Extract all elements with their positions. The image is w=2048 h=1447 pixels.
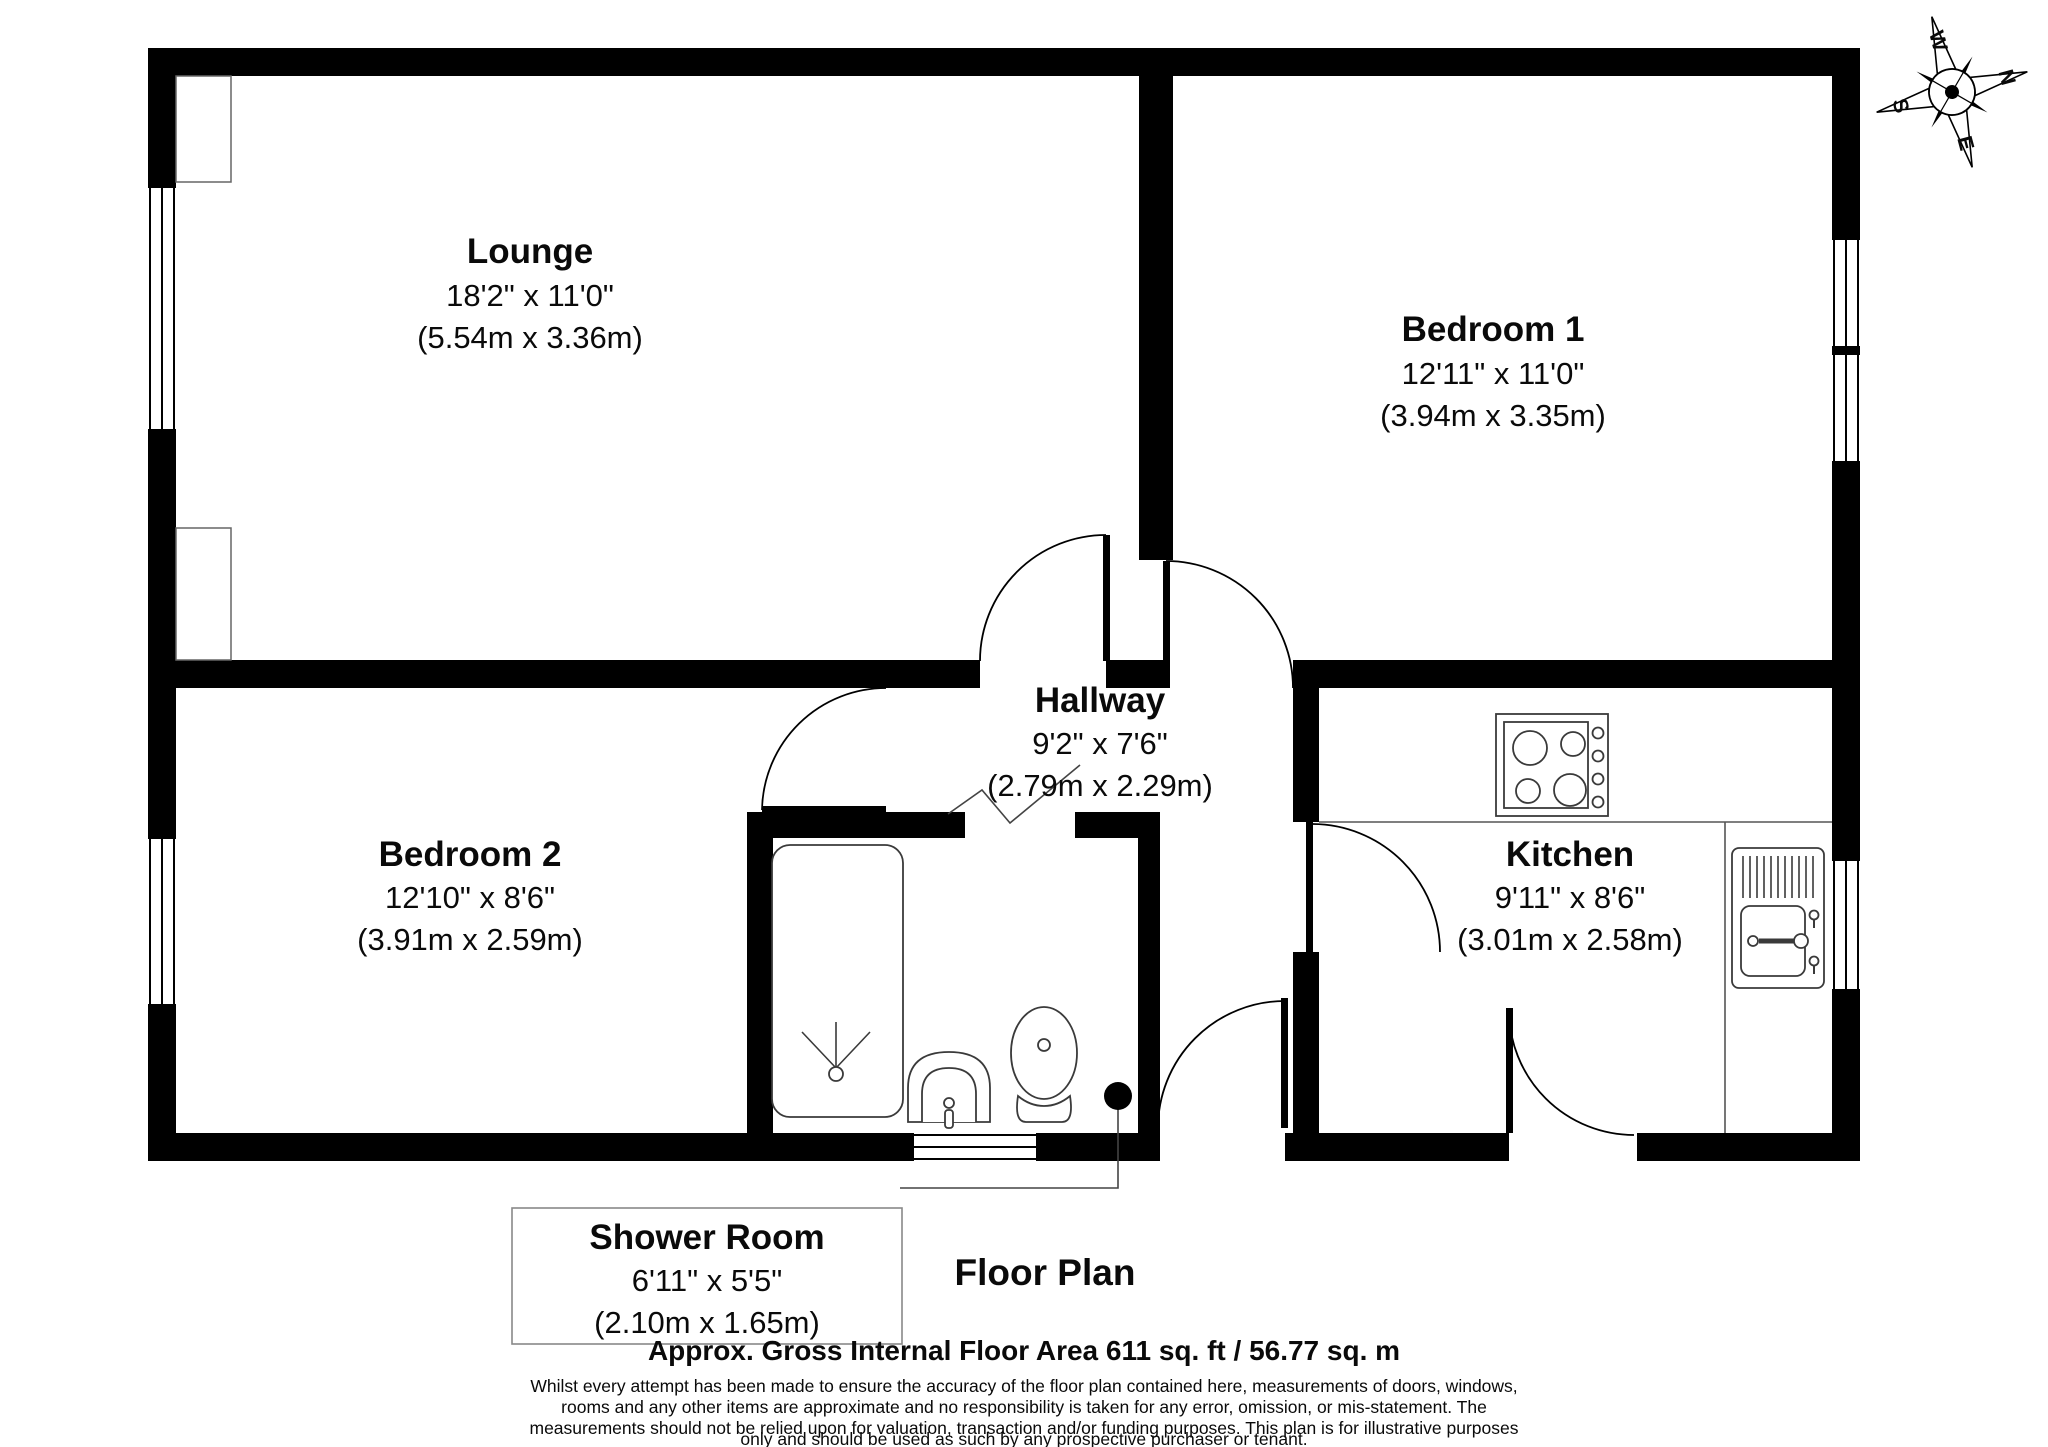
walls — [148, 48, 1860, 1161]
disclaimer-line: rooms and any other items are approximat… — [561, 1397, 1487, 1417]
room-label-hallway: Hallway 9'2" x 7'6" (2.79m x 2.29m) — [987, 681, 1213, 803]
room-name: Hallway — [1035, 681, 1166, 720]
room-name: Bedroom 2 — [379, 835, 562, 874]
room-imperial: 12'10" x 8'6" — [385, 880, 555, 915]
window-bedroom1 — [1832, 239, 1860, 462]
toilet-icon — [1011, 1007, 1077, 1122]
disclaimer-line: Whilst every attempt has been made to en… — [530, 1376, 1517, 1396]
door-kitchen — [1306, 822, 1440, 952]
window-kitchen — [1832, 860, 1860, 990]
room-label-lounge: Lounge 18'2" x 11'0" (5.54m x 3.36m) — [417, 232, 643, 355]
compass-e: E — [1952, 134, 1978, 153]
room-imperial: 12'11" x 11'0" — [1402, 356, 1585, 391]
room-metric: (3.94m x 3.35m) — [1380, 398, 1606, 433]
floorplan-drawing: N E S W Lounge 18'2" x 11'0" (5.54m x 3.… — [0, 0, 2048, 1447]
room-imperial: 18'2" x 11'0" — [446, 278, 614, 313]
floorplan-page: N E S W Lounge 18'2" x 11'0" (5.54m x 3.… — [0, 0, 2048, 1447]
sink-icon — [1732, 848, 1824, 988]
door-front-entrance — [1158, 998, 1288, 1128]
room-imperial: 6'11" x 5'5" — [632, 1263, 782, 1298]
compass-icon: N E S W — [1856, 0, 2047, 188]
lounge-recess-bottom — [176, 528, 231, 660]
room-metric: (3.01m x 2.58m) — [1457, 922, 1683, 957]
hob-icon — [1496, 714, 1608, 816]
room-name: Shower Room — [589, 1218, 824, 1257]
door-lounge — [980, 535, 1110, 661]
room-label-bedroom2: Bedroom 2 12'10" x 8'6" (3.91m x 2.59m) — [357, 835, 583, 957]
disclaimer-line: only and should be used as such by any p… — [740, 1429, 1307, 1447]
door-back-kitchen — [1506, 1008, 1634, 1135]
disclaimer: Whilst every attempt has been made to en… — [530, 1376, 1519, 1447]
bathtub-icon — [772, 845, 903, 1117]
window-shower-room — [913, 1133, 1037, 1161]
room-label-kitchen: Kitchen 9'11" x 8'6" (3.01m x 2.58m) — [1457, 835, 1683, 957]
room-label-shower-room: Shower Room 6'11" x 5'5" (2.10m x 1.65m) — [512, 1208, 902, 1344]
shower-room-leader-dot — [1104, 1082, 1132, 1110]
compass-s: S — [1887, 96, 1913, 115]
room-name: Lounge — [467, 232, 593, 271]
lounge-recess-top — [176, 76, 231, 182]
compass-n: N — [1994, 67, 2020, 88]
room-name: Bedroom 1 — [1402, 310, 1585, 349]
room-imperial: 9'2" x 7'6" — [1032, 726, 1168, 761]
floor-area-line: Approx. Gross Internal Floor Area 611 sq… — [648, 1335, 1400, 1366]
room-label-bedroom1: Bedroom 1 12'11" x 11'0" (3.94m x 3.35m) — [1380, 310, 1606, 433]
window-bedroom2 — [148, 838, 176, 1005]
door-bedroom2 — [762, 688, 886, 813]
room-name: Kitchen — [1506, 835, 1634, 874]
page-title: Floor Plan — [955, 1252, 1136, 1293]
washbasin-icon — [908, 1052, 990, 1128]
room-metric: (3.91m x 2.59m) — [357, 922, 583, 957]
room-metric: (5.54m x 3.36m) — [417, 320, 643, 355]
door-bedroom1 — [1163, 561, 1293, 688]
window-lounge — [148, 187, 176, 430]
room-imperial: 9'11" x 8'6" — [1495, 880, 1645, 915]
room-metric: (2.79m x 2.29m) — [987, 768, 1213, 803]
